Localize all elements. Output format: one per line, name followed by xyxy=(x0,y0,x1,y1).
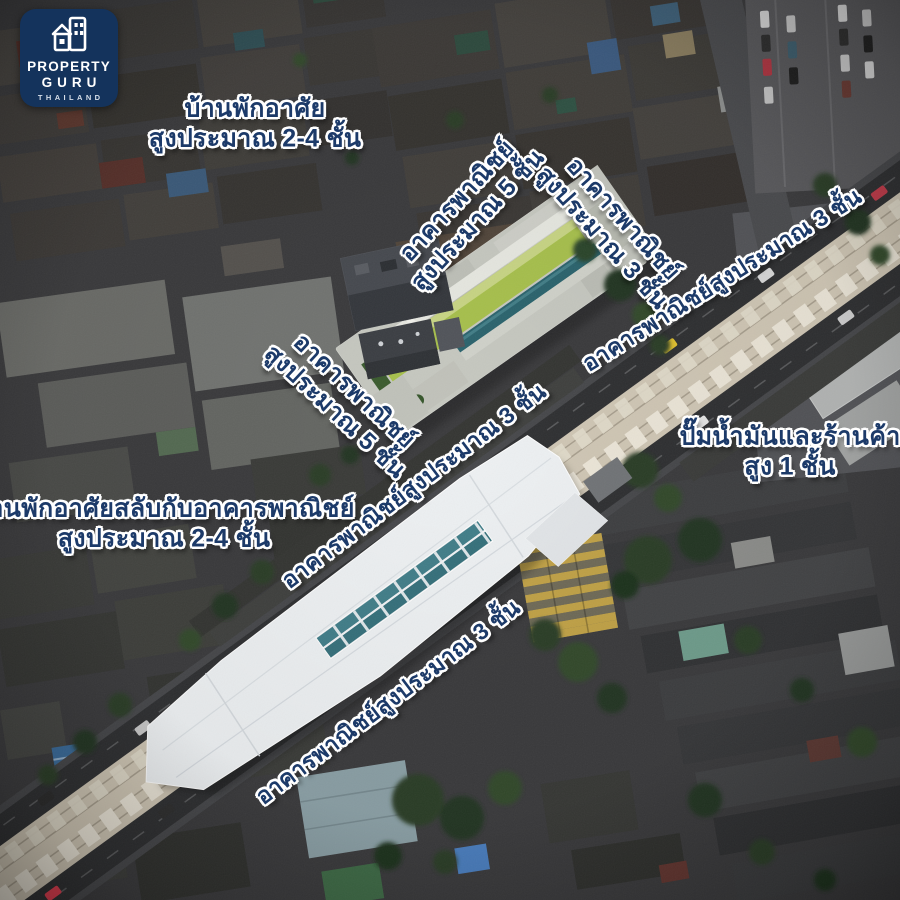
brand-line-2: GURU xyxy=(37,75,102,91)
buildings-icon xyxy=(46,14,92,54)
aerial-photo xyxy=(0,0,900,900)
brand-line-3: THAILAND xyxy=(35,93,104,102)
propertyguru-logo: PROPERTY GURU THAILAND xyxy=(20,9,118,107)
aerial-listing-image: PROPERTY GURU THAILAND บ้านพักอาศัย สูงป… xyxy=(0,0,900,900)
vignette xyxy=(0,0,900,900)
brand-line-1: PROPERTY xyxy=(27,59,111,75)
